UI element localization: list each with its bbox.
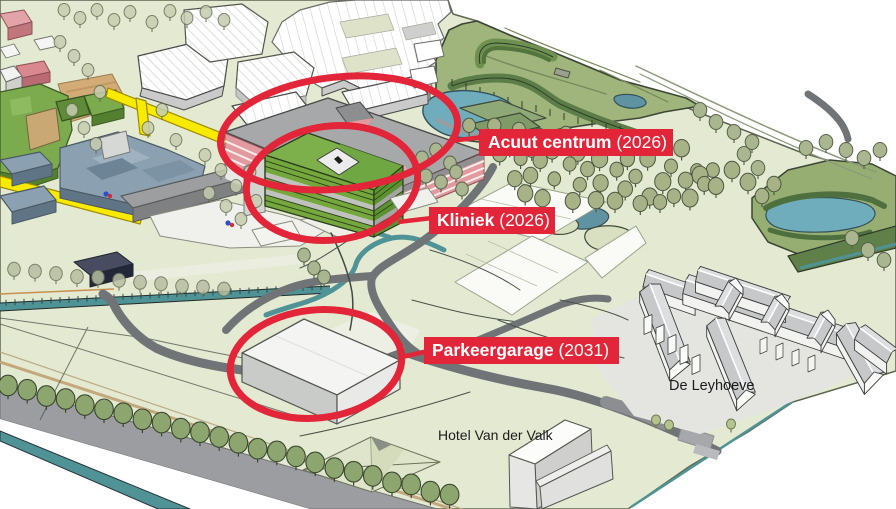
svg-text:Parkeergarage (2031): Parkeergarage (2031) xyxy=(432,340,609,360)
svg-text:Hotel Van der Valk: Hotel Van der Valk xyxy=(438,427,554,443)
svg-text:De Leyhoeve: De Leyhoeve xyxy=(669,378,754,394)
svg-text:Acuut centrum (2026): Acuut centrum (2026) xyxy=(488,132,667,152)
svg-text:Kliniek (2026): Kliniek (2026) xyxy=(437,210,550,230)
